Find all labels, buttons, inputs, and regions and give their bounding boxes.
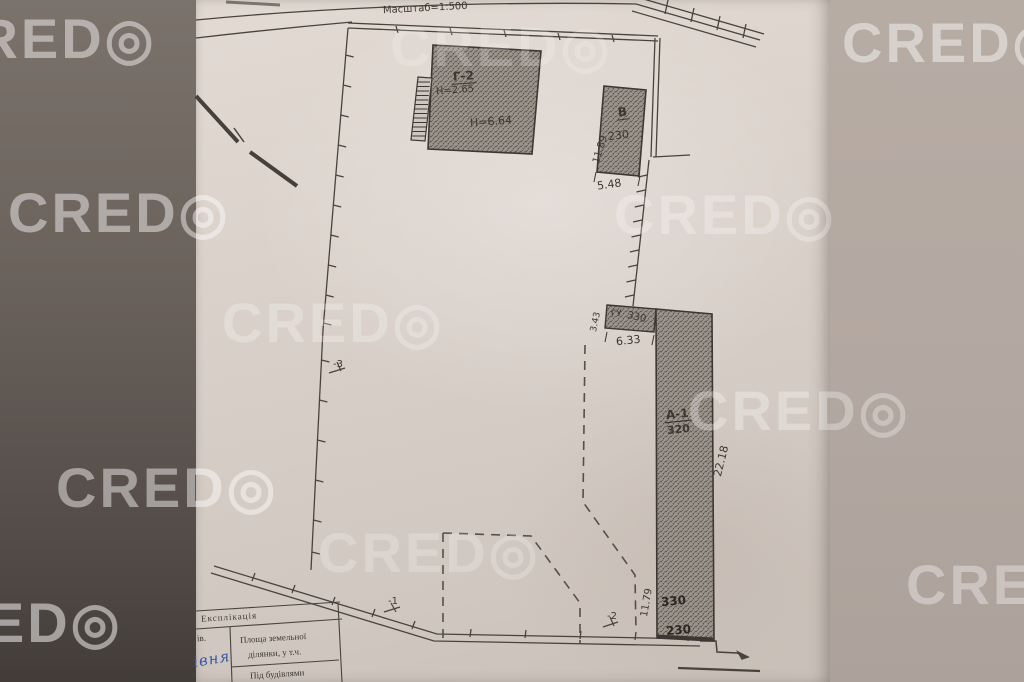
dashed-outline <box>443 345 636 643</box>
mark-3: -3 <box>333 360 343 370</box>
diagonal-feature-left <box>196 96 297 186</box>
fence-left <box>311 28 354 570</box>
building-long-label: А-1 <box>663 407 691 424</box>
building-small-value: 230 <box>607 129 629 142</box>
scanned-site-plan-photo: { "watermark": { "label": "CRED◎" }, "pl… <box>0 0 1024 682</box>
utility-label: ГУ <box>611 310 623 320</box>
building-top-height-2: Н=6.64 <box>470 115 513 129</box>
building-long-hatched <box>656 309 714 641</box>
table-col1-fragment: ів. <box>197 634 207 644</box>
railway-symbol <box>632 0 764 47</box>
site-plan-drawing <box>0 0 1024 682</box>
building-top-hatched <box>428 45 541 154</box>
building-long-value-2: 330 <box>661 594 687 608</box>
utility-dim-bottom: 6.33 <box>615 334 641 348</box>
mark-leaders <box>329 362 618 627</box>
building-small-dim-bottom: 5.48 <box>596 177 622 191</box>
building-small-label: В <box>615 105 630 120</box>
building-long-value: 320 <box>666 423 690 436</box>
building-top-label: Г-2 <box>451 69 477 85</box>
mark-1: -1 <box>388 597 398 607</box>
building-long-value-3: 230 <box>666 623 692 637</box>
top-edge-fragment <box>226 2 280 5</box>
fence-right <box>625 160 649 306</box>
mark-2: -2 <box>607 612 617 622</box>
